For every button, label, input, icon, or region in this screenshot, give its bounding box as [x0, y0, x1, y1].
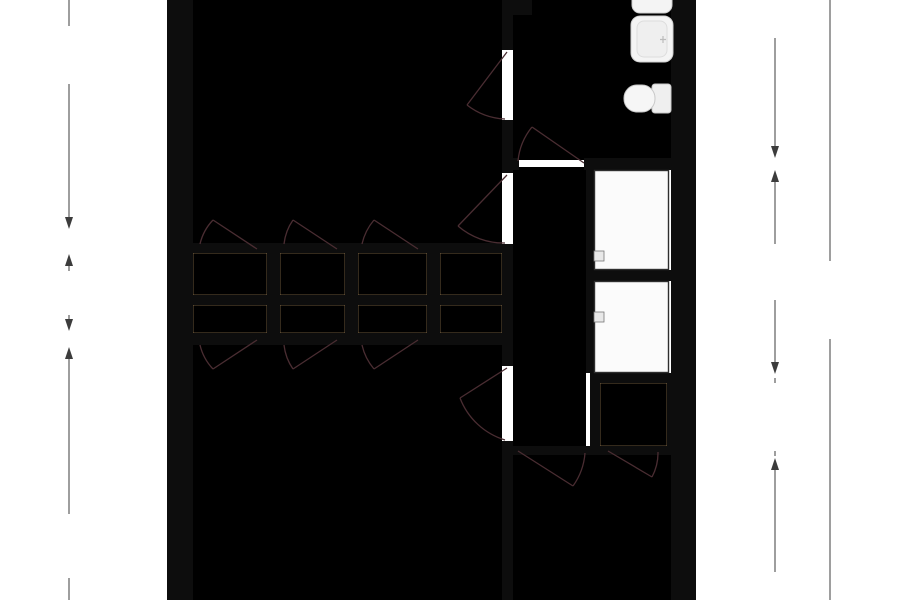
kast-cell-bottom-right: [600, 383, 667, 446]
dim-arrow-up: [65, 347, 73, 359]
stair-newel-upper: [594, 251, 604, 261]
room-slaapkamer-bottom-left: [193, 345, 502, 600]
wall-divider: [502, 15, 513, 50]
sink-icon: [632, 0, 672, 13]
room-slaapkamer-top: [193, 0, 502, 243]
wall-kast-divider: [267, 243, 280, 345]
stair-flight-lower: [595, 282, 669, 373]
dim-arrow-up: [771, 458, 779, 470]
dim-arrow-up: [771, 170, 779, 182]
kast-cell: [440, 253, 502, 295]
dim-arrow-down: [771, 146, 779, 158]
floor-plan: [0, 0, 900, 600]
wall-stair-landing: [586, 270, 671, 281]
floorplan-canvas: [0, 0, 900, 600]
wall-badkamer-bottom: [584, 158, 671, 170]
wall-kast-divider: [345, 243, 358, 345]
kast-cell: [280, 253, 345, 295]
sink-icon: [631, 16, 673, 62]
dim-arrow-down: [65, 217, 73, 229]
stair-flight-upper: [595, 171, 669, 270]
room-hal: [513, 167, 586, 446]
wall-divider: [502, 441, 513, 600]
wall-hal-bottom: [502, 446, 671, 455]
wall-exterior-right: [671, 0, 696, 600]
kast-cell: [193, 253, 267, 295]
wall-exterior-left: [167, 0, 193, 600]
kast-cell: [193, 305, 267, 333]
dim-arrow-down: [65, 319, 73, 331]
wall-kast-right-filler: [667, 383, 671, 446]
wall-kast-left: [590, 383, 600, 446]
toilet-icon: [624, 84, 671, 113]
dim-arrow-up: [65, 254, 73, 266]
dim-arrow-down: [771, 362, 779, 374]
wall-below-stairs: [590, 373, 671, 383]
kast-cell: [280, 305, 345, 333]
kast-cell: [440, 305, 502, 333]
stair-newel-lower: [594, 312, 604, 322]
wall-stub-top: [502, 0, 532, 15]
wall-divider: [502, 244, 513, 366]
wall-divider: [502, 120, 513, 173]
kast-cell: [358, 253, 427, 295]
wall-kast-divider: [427, 243, 440, 345]
kast-cell: [358, 305, 427, 333]
wall-hal-stairs: [586, 281, 594, 373]
wall-hal-stairs: [586, 167, 594, 270]
room-slaapkamer-bottom-right: [513, 455, 671, 600]
